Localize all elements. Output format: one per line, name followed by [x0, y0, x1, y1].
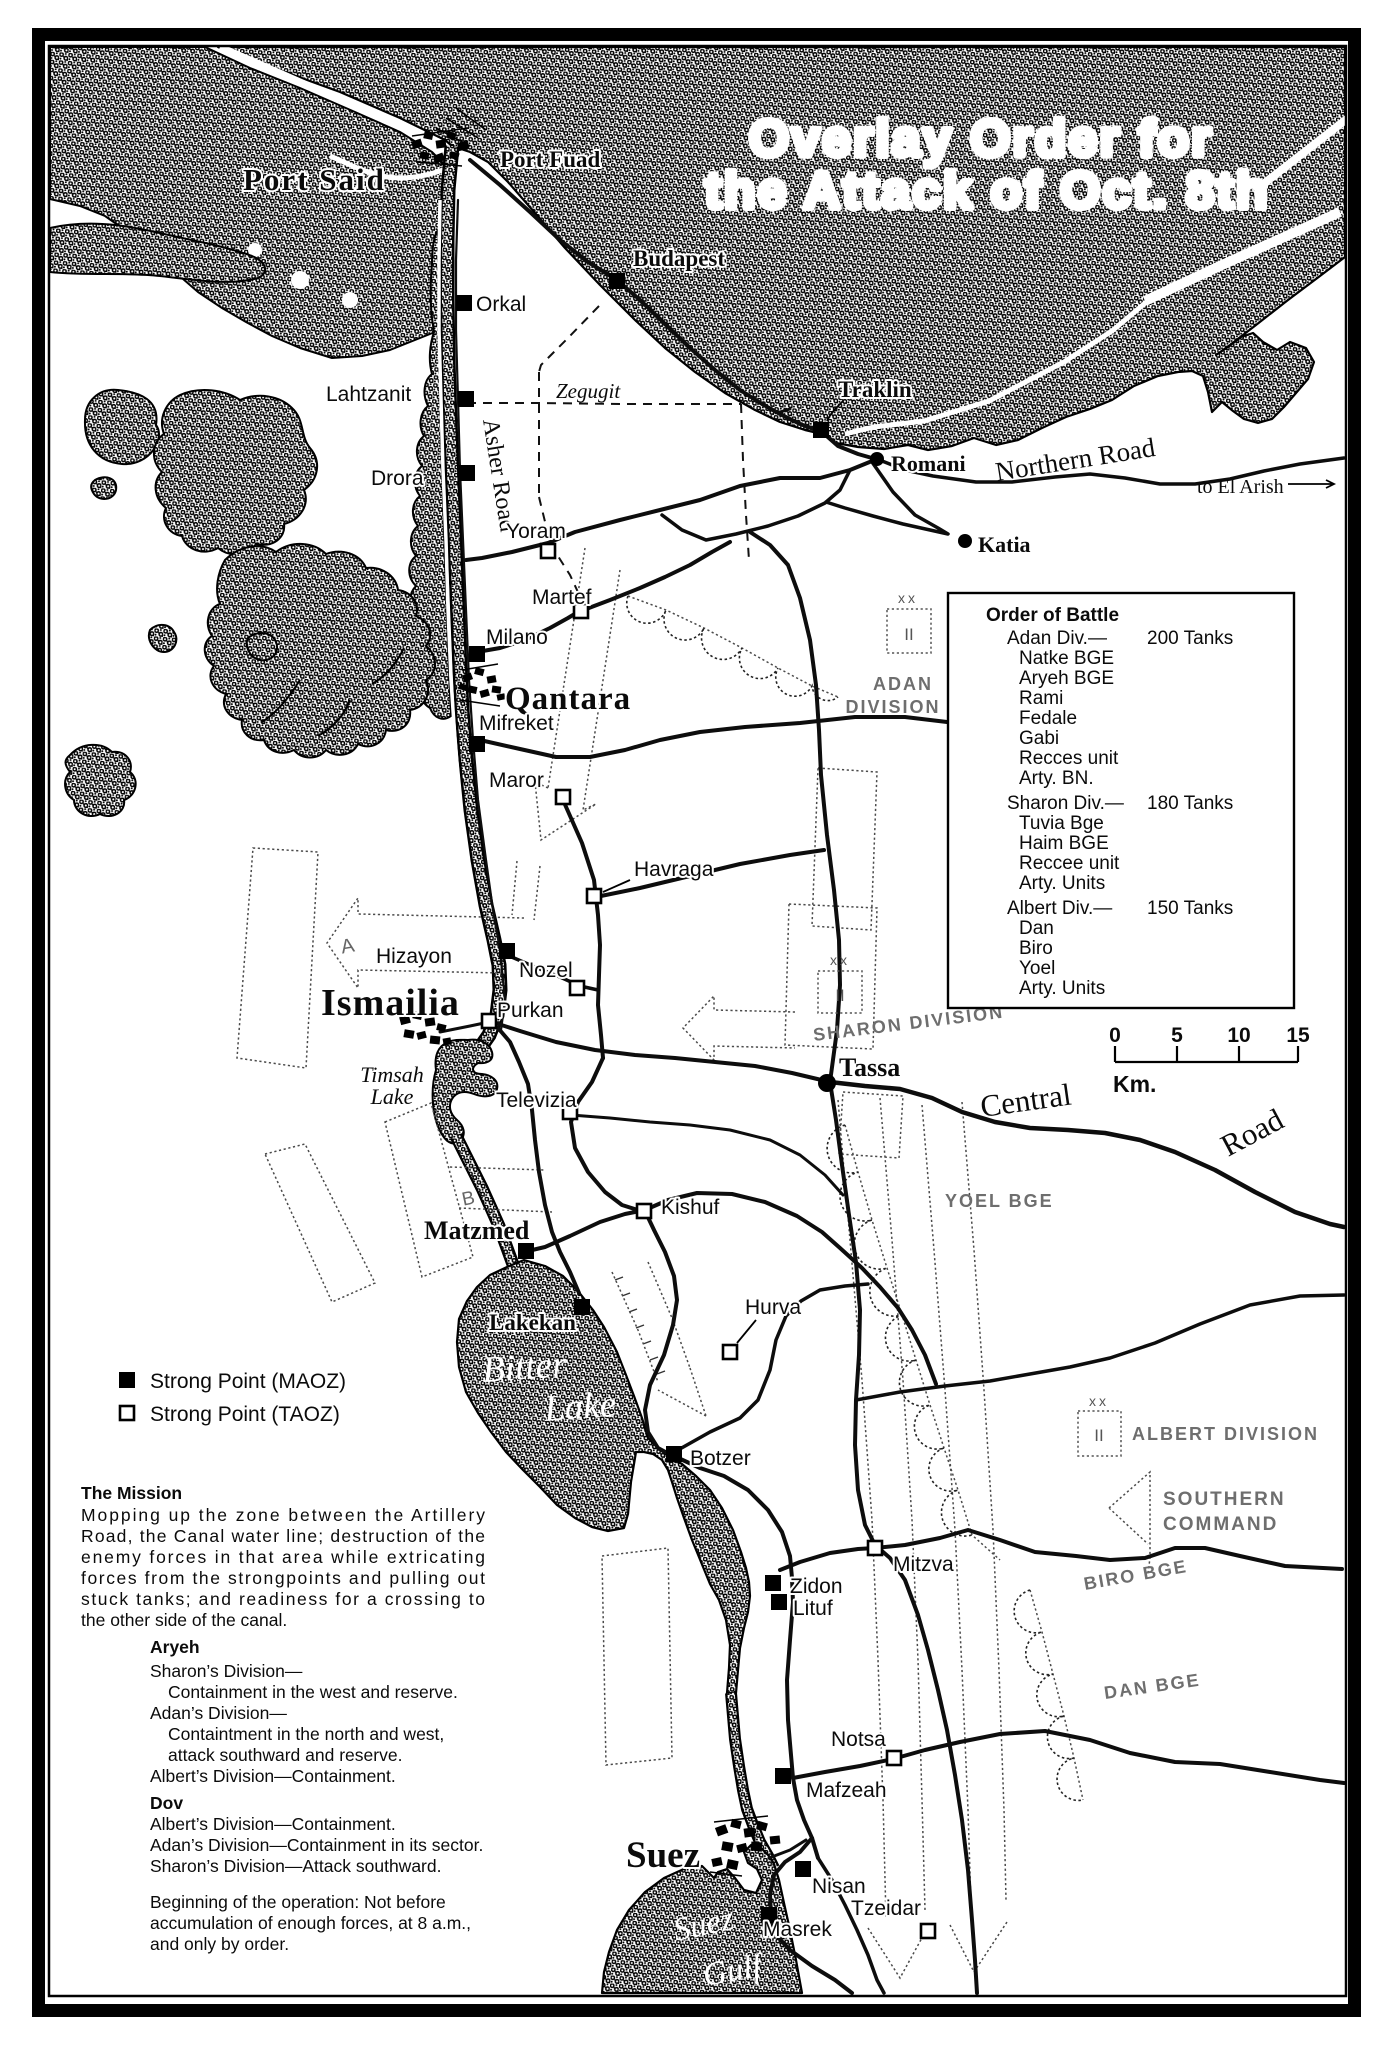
svg-text:Gabi: Gabi	[1019, 728, 1059, 749]
svg-text:Recces unit: Recces unit	[1019, 748, 1119, 769]
svg-text:Sharon’s Division—Attack south: Sharon’s Division—Attack southward.	[150, 1856, 441, 1876]
svg-text:Nisan: Nisan	[812, 1875, 866, 1898]
svg-text:Yoel: Yoel	[1019, 958, 1055, 979]
svg-text:Strong Point (TAOZ): Strong Point (TAOZ)	[150, 1403, 340, 1426]
svg-text:Lake: Lake	[542, 1384, 618, 1430]
svg-text:Containment in the west and re: Containment in the west and reserve.	[168, 1682, 458, 1702]
svg-text:the other side of the canal.: the other side of the canal.	[81, 1610, 287, 1630]
svg-text:Tzeidar: Tzeidar	[851, 1897, 921, 1920]
svg-text:Arty. BN.: Arty. BN.	[1019, 768, 1094, 789]
svg-text:Purkan: Purkan	[497, 999, 564, 1022]
svg-text:Road, the Canal water line; de: Road, the Canal water line; destruction …	[81, 1526, 485, 1546]
svg-text:Arty. Units: Arty. Units	[1019, 873, 1105, 894]
svg-text:Aryeh BGE: Aryeh BGE	[1019, 668, 1114, 689]
svg-text:Romani: Romani	[891, 451, 966, 476]
svg-text:Haim BGE: Haim BGE	[1019, 833, 1109, 854]
svg-text:Biro: Biro	[1019, 938, 1053, 959]
svg-text:Lahtzanit: Lahtzanit	[326, 383, 411, 406]
svg-text:Reccee unit: Reccee unit	[1019, 853, 1120, 874]
svg-text:Botzer: Botzer	[690, 1447, 751, 1470]
svg-text:ALBERT DIVISION: ALBERT DIVISION	[1132, 1424, 1319, 1444]
svg-text:Lake: Lake	[370, 1084, 414, 1109]
svg-text:COMMAND: COMMAND	[1163, 1514, 1278, 1535]
svg-text:the Attack of Oct. 8th: the Attack of Oct. 8th	[704, 162, 1269, 220]
svg-text:Adan’s Division—: Adan’s Division—	[150, 1703, 287, 1723]
svg-text:Tuvia Bge: Tuvia Bge	[1019, 813, 1104, 834]
svg-text:Adan’s Division—Containment in: Adan’s Division—Containment in its secto…	[150, 1835, 483, 1855]
svg-text:II: II	[835, 986, 844, 1005]
svg-text:Order of Battle: Order of Battle	[986, 605, 1119, 626]
svg-text:Kishuf: Kishuf	[661, 1196, 720, 1219]
svg-text:Overlay Order for: Overlay Order for	[749, 110, 1214, 168]
svg-text:Albert’s Division—Containment.: Albert’s Division—Containment.	[150, 1766, 396, 1786]
svg-text:Notsa: Notsa	[831, 1728, 886, 1751]
svg-text:Martef: Martef	[532, 586, 592, 609]
svg-text:Tassa: Tassa	[839, 1053, 900, 1082]
svg-text:Orkal: Orkal	[476, 293, 526, 316]
svg-text:Mifreket: Mifreket	[479, 712, 554, 735]
svg-text:Traklin: Traklin	[838, 377, 912, 402]
svg-text:YOEL BGE: YOEL BGE	[945, 1191, 1054, 1211]
svg-text:Masrek: Masrek	[763, 1918, 832, 1941]
svg-text:200 Tanks: 200 Tanks	[1147, 628, 1233, 649]
svg-text:Nozel: Nozel	[519, 959, 573, 982]
svg-text:Arty. Units: Arty. Units	[1019, 978, 1105, 999]
svg-text:Containtment in the north and: Containtment in the north and west,	[168, 1724, 444, 1744]
svg-text:Port Fuad: Port Fuad	[500, 147, 601, 172]
svg-text:180 Tanks: 180 Tanks	[1147, 793, 1233, 814]
svg-text:0: 0	[1109, 1024, 1121, 1047]
svg-text:10: 10	[1227, 1024, 1250, 1047]
svg-text:Lakekan: Lakekan	[489, 1310, 576, 1335]
svg-text:Budapest: Budapest	[633, 246, 725, 271]
svg-text:Strong Point (MAOZ): Strong Point (MAOZ)	[150, 1370, 346, 1393]
svg-text:Mopping up the zone between th: Mopping up the zone between the Artiller…	[81, 1505, 485, 1525]
svg-text:stuck tanks; and readiness for: stuck tanks; and readiness for a crossin…	[81, 1589, 485, 1609]
svg-text:Suez: Suez	[626, 1835, 700, 1876]
svg-text:Aryeh: Aryeh	[150, 1637, 200, 1657]
svg-text:Milano: Milano	[486, 626, 548, 649]
svg-text:Ismailia: Ismailia	[321, 982, 460, 1024]
svg-text:Hurva: Hurva	[745, 1296, 801, 1319]
svg-text:xx: xx	[1089, 1393, 1109, 1409]
svg-text:II: II	[1094, 1426, 1103, 1445]
svg-text:Dan: Dan	[1019, 918, 1054, 939]
svg-text:xx: xx	[830, 952, 850, 968]
svg-text:to El Arish: to El Arish	[1197, 476, 1284, 498]
svg-text:Lituf: Lituf	[793, 1597, 833, 1620]
svg-text:Matzmed: Matzmed	[424, 1216, 530, 1245]
svg-text:ADAN: ADAN	[873, 674, 933, 694]
svg-text:Havraga: Havraga	[634, 858, 714, 881]
svg-text:Katia: Katia	[978, 532, 1031, 557]
svg-text:Bitter: Bitter	[481, 1344, 569, 1391]
svg-text:Zidon: Zidon	[790, 1575, 843, 1598]
svg-text:and only by order.: and only by order.	[150, 1934, 289, 1954]
svg-text:Natke BGE: Natke BGE	[1019, 648, 1114, 669]
svg-text:Mafzeah: Mafzeah	[806, 1779, 887, 1802]
svg-text:Albert’s Division—Containment.: Albert’s Division—Containment.	[150, 1814, 396, 1834]
svg-text:Albert Div.—: Albert Div.—	[1007, 898, 1112, 919]
svg-text:Hizayon: Hizayon	[376, 945, 452, 968]
svg-text:attack southward and reserve.: attack southward and reserve.	[168, 1745, 402, 1765]
svg-text:SOUTHERN: SOUTHERN	[1163, 1489, 1286, 1510]
svg-text:Fedale: Fedale	[1019, 708, 1077, 729]
svg-text:accumulation of enough forces,: accumulation of enough forces, at 8 a.m.…	[150, 1913, 471, 1933]
svg-text:Sharon Div.—: Sharon Div.—	[1007, 793, 1124, 814]
svg-text:Maror: Maror	[489, 769, 544, 792]
svg-text:DIVISION: DIVISION	[845, 697, 940, 717]
svg-text:Televizia: Televizia	[496, 1089, 577, 1112]
svg-text:Dov: Dov	[150, 1793, 183, 1813]
svg-text:Zegugit: Zegugit	[556, 379, 621, 403]
svg-text:forces from the strongpoints a: forces from the strongpoints and pulling…	[81, 1568, 485, 1588]
svg-text:5: 5	[1171, 1024, 1183, 1047]
svg-text:15: 15	[1286, 1024, 1310, 1047]
svg-text:Km.: Km.	[1113, 1071, 1156, 1097]
svg-text:xx: xx	[898, 590, 918, 606]
svg-text:Yoram: Yoram	[506, 520, 566, 543]
svg-text:Adan Div.—: Adan Div.—	[1007, 628, 1107, 649]
svg-text:150 Tanks: 150 Tanks	[1147, 898, 1233, 919]
svg-text:Rami: Rami	[1019, 688, 1063, 709]
svg-text:Beginning of the operation: No: Beginning of the operation: Not before	[150, 1892, 446, 1912]
svg-text:II: II	[904, 625, 913, 644]
svg-text:Sharon’s Division—: Sharon’s Division—	[150, 1661, 303, 1681]
svg-text:The Mission: The Mission	[81, 1483, 182, 1503]
svg-text:Mitzva: Mitzva	[893, 1553, 954, 1576]
svg-text:Port Said: Port Said	[243, 162, 386, 197]
svg-text:Drora: Drora	[371, 467, 424, 490]
